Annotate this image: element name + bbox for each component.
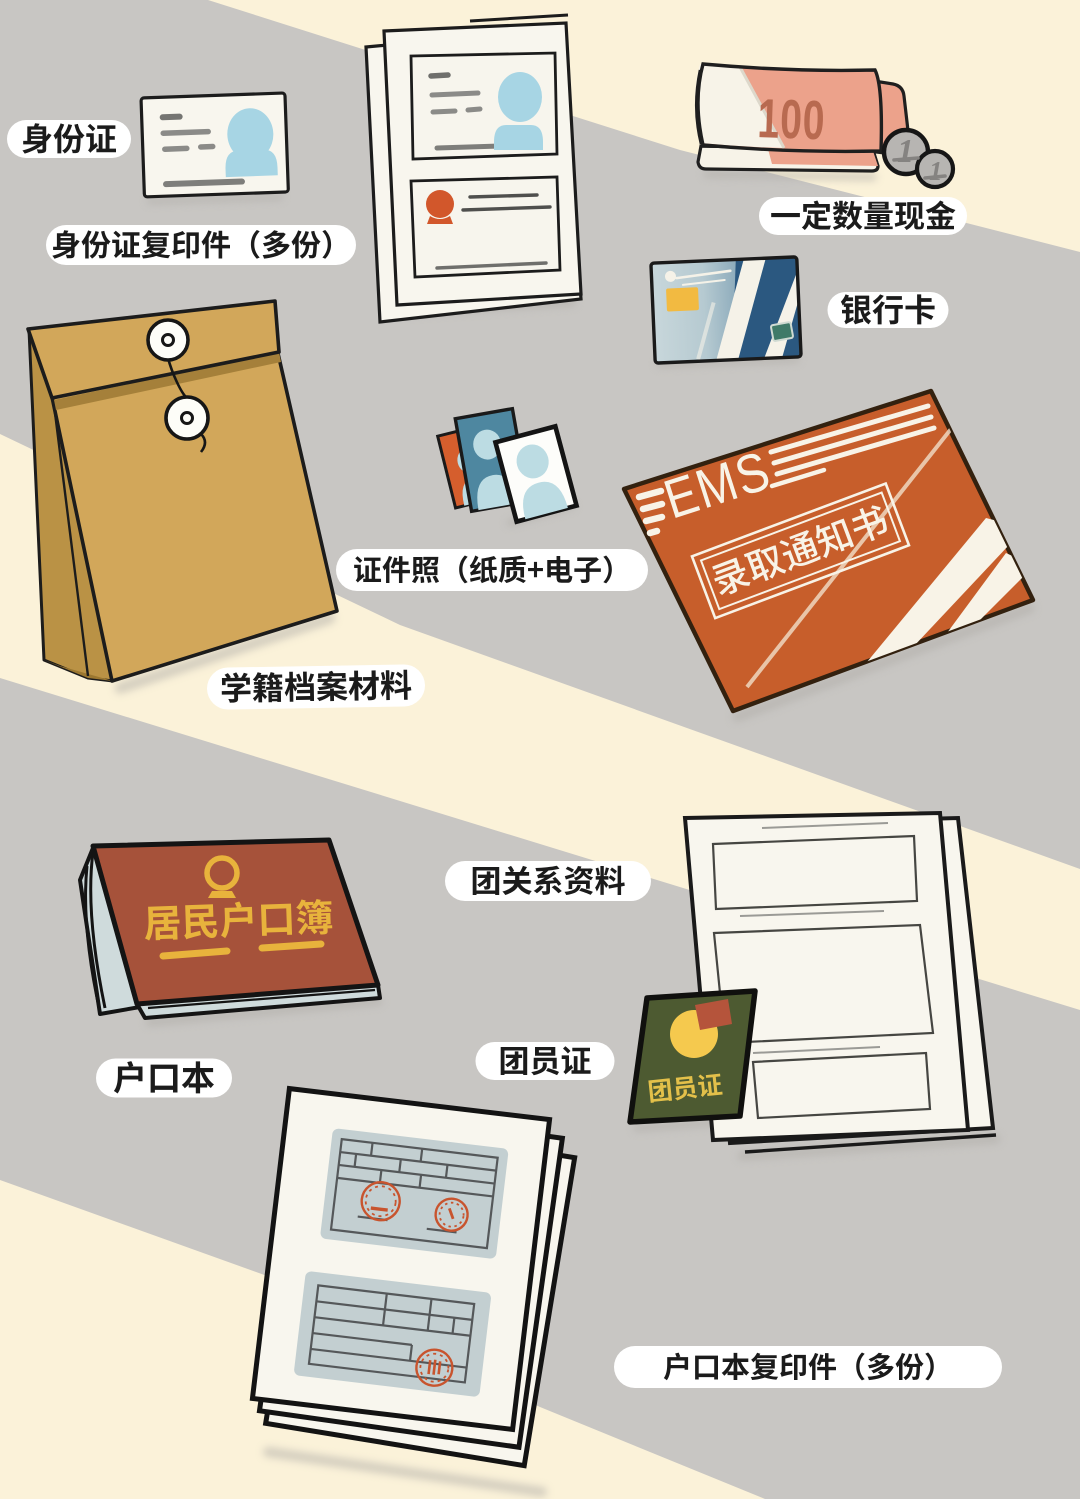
svg-text:1: 1 bbox=[897, 133, 914, 170]
svg-text:1: 1 bbox=[929, 156, 943, 186]
svg-text:100: 100 bbox=[757, 89, 827, 152]
